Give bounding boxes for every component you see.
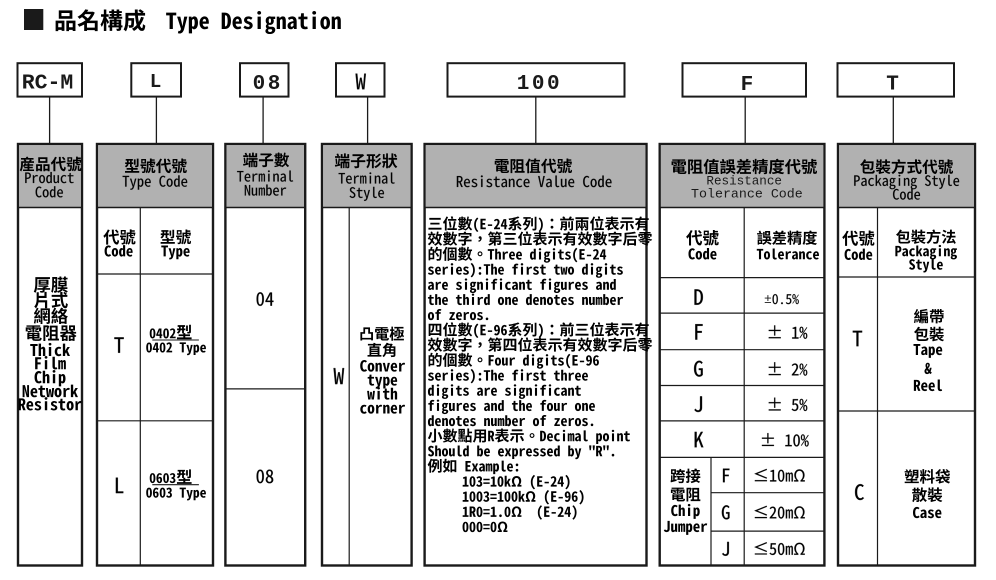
svg-text:0: 0: [253, 73, 266, 96]
svg-text:F: F: [741, 74, 754, 97]
svg-text:L: L: [150, 71, 162, 93]
svg-text:±: ±: [764, 292, 772, 307]
svg-text:100: 100: [517, 73, 562, 96]
svg-text:8: 8: [268, 73, 281, 96]
svg-text:Tolerance Code: Tolerance Code: [691, 187, 803, 202]
svg-text:RC-M: RC-M: [22, 71, 74, 95]
svg-text:T: T: [886, 74, 899, 97]
